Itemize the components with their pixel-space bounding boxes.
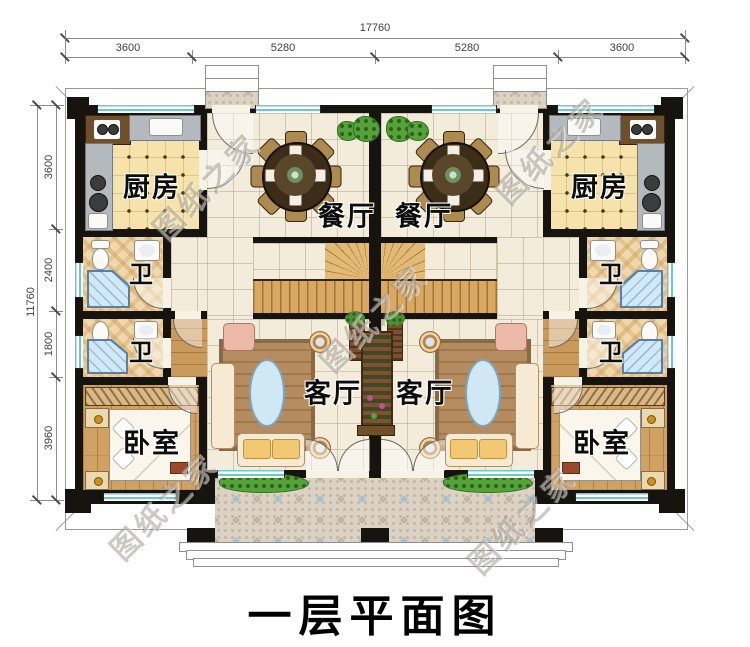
room-label-bath-lower-left: 卫 <box>129 333 155 368</box>
top-seg-dim-4: 3600 <box>592 42 652 54</box>
door-opening <box>168 377 196 385</box>
toilet-icon <box>92 248 109 270</box>
corner-column <box>659 489 685 513</box>
door-opening <box>500 105 538 113</box>
window <box>467 470 535 478</box>
rear-stoop-steps <box>205 65 259 93</box>
corridor-right <box>543 237 579 311</box>
oven-icon <box>642 213 662 229</box>
armchair <box>223 323 255 351</box>
oven-icon <box>88 213 108 229</box>
rear-stoop-steps <box>493 65 547 93</box>
room-label-kitchen-right: 厨房 <box>571 166 629 205</box>
door-opening <box>549 311 575 319</box>
window <box>75 262 83 298</box>
top-total-dim: 17760 <box>345 22 405 34</box>
left-seg-dim-4: 3960 <box>43 408 55 468</box>
passage-right <box>497 237 543 319</box>
top-seg-dim-2: 5280 <box>253 42 313 54</box>
left-seg-dim-3: 1800 <box>43 314 55 374</box>
door-opening <box>554 377 582 385</box>
shower-icon <box>622 339 663 374</box>
stove-icon <box>93 119 121 140</box>
french-door <box>306 470 369 478</box>
window <box>575 493 649 501</box>
room-label-bath-lower-right: 卫 <box>599 333 625 368</box>
left-dim-line-1 <box>37 105 38 500</box>
corner-column <box>65 489 91 513</box>
armchair <box>495 323 527 351</box>
coffee-table <box>465 359 501 427</box>
room-label-bedroom-left: 卧室 <box>123 422 181 461</box>
window <box>75 335 83 369</box>
door-opening <box>163 338 171 368</box>
nightstand <box>641 408 665 428</box>
door-opening <box>579 338 587 368</box>
nightstand <box>85 408 109 428</box>
plant-icon <box>407 121 429 141</box>
door-opening <box>212 105 250 113</box>
room-label-dining-left: 餐厅 <box>318 195 376 234</box>
decor-cabinet-base <box>357 425 395 436</box>
shower-icon <box>87 270 130 308</box>
kitchen-sink <box>149 118 183 136</box>
window <box>431 105 497 113</box>
window <box>217 470 285 478</box>
door-opening <box>163 278 171 308</box>
sofa-two-seat <box>237 433 305 467</box>
top-seg-dim-3: 5280 <box>437 42 497 54</box>
room-label-living-right: 客厅 <box>396 372 454 411</box>
passage-left <box>207 237 253 319</box>
pot-icon <box>89 193 108 212</box>
sofa-long <box>515 363 539 449</box>
window <box>97 105 195 113</box>
left-seg-dim-1: 3600 <box>43 137 55 197</box>
shower-icon <box>87 339 128 374</box>
top-seg-dim-1: 3600 <box>98 42 158 54</box>
round-side-table <box>419 331 441 353</box>
window <box>667 262 675 298</box>
room-label-bedroom-right: 卧室 <box>573 422 631 461</box>
staircase-left <box>253 243 369 311</box>
floor-plan-canvas: 17760 3600 5280 5280 3600 11760 <box>0 0 750 647</box>
door-opening <box>175 311 201 319</box>
cooktop-icon <box>644 175 660 191</box>
nightstand <box>85 471 109 490</box>
cooktop-icon <box>90 175 106 191</box>
stove-icon <box>629 119 657 140</box>
room-label-dining-right: 餐厅 <box>395 195 453 234</box>
left-seg-dim-2: 2400 <box>43 240 55 300</box>
shower-icon <box>620 270 663 308</box>
nightstand <box>641 471 665 490</box>
window <box>667 335 675 369</box>
left-total-dim: 11760 <box>25 272 37 332</box>
toilet-icon <box>641 248 658 270</box>
sofa-long <box>211 363 235 449</box>
door-opening <box>579 278 587 308</box>
room-label-bath-upper-right: 卫 <box>599 255 625 290</box>
left-dim-line-2 <box>56 105 57 500</box>
floor-plan-title: 一层平面图 <box>200 580 550 644</box>
window <box>255 105 321 113</box>
coffee-table <box>249 359 285 427</box>
sofa-two-seat <box>445 433 513 467</box>
room-label-bath-upper-left: 卫 <box>129 255 155 290</box>
corridor-left <box>171 237 207 311</box>
pot-icon <box>642 193 661 212</box>
french-door <box>381 470 444 478</box>
top-dim-line-1 <box>65 38 685 39</box>
plant-icon <box>353 116 380 142</box>
